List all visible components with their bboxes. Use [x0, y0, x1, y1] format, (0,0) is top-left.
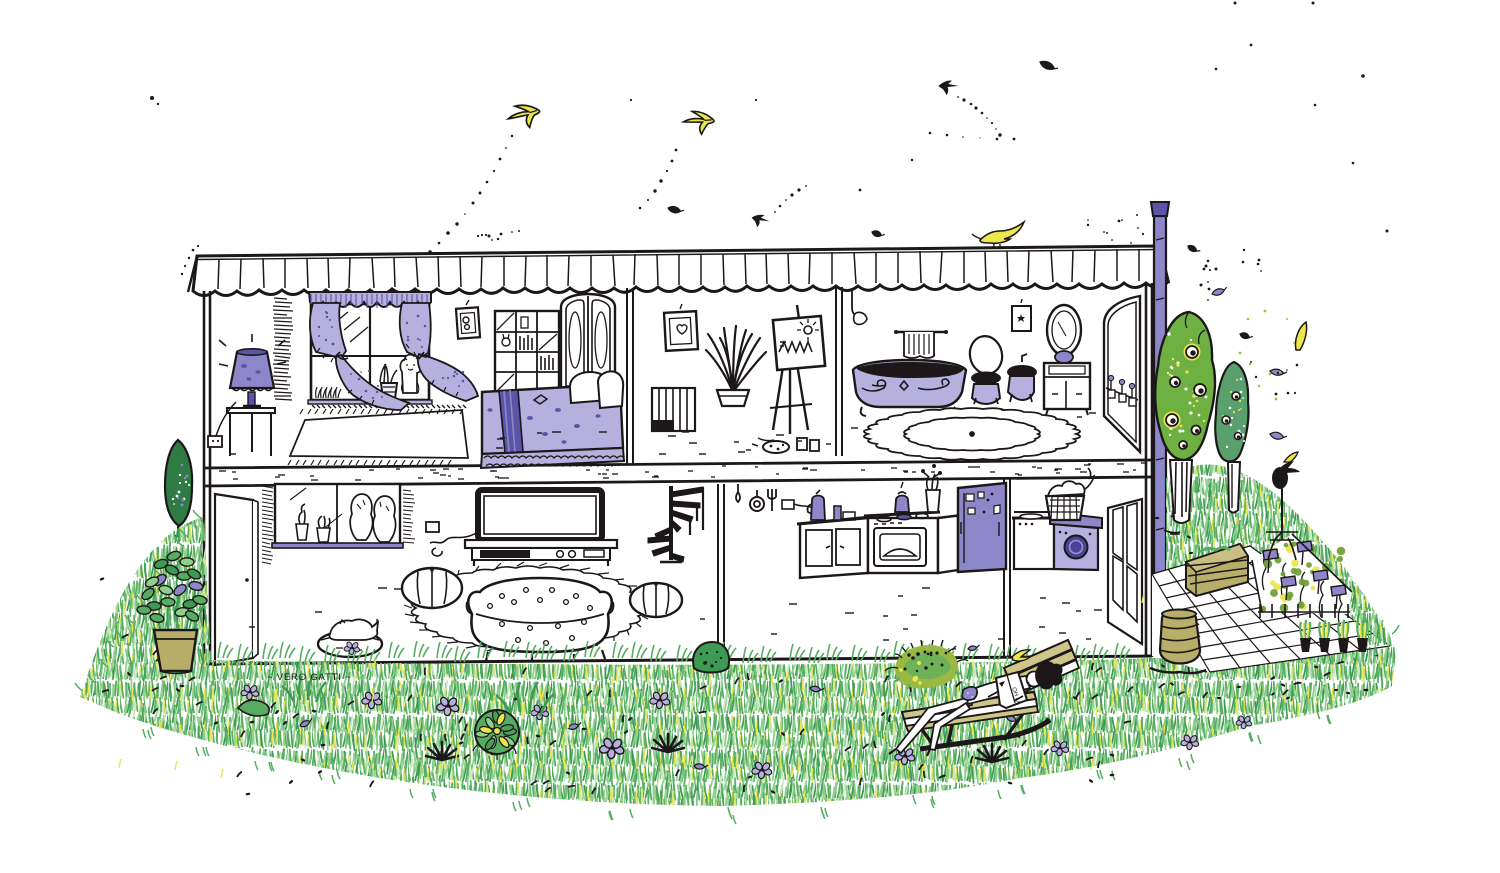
svg-text:~ VERO GATTI ~: ~ VERO GATTI ~: [267, 672, 351, 683]
